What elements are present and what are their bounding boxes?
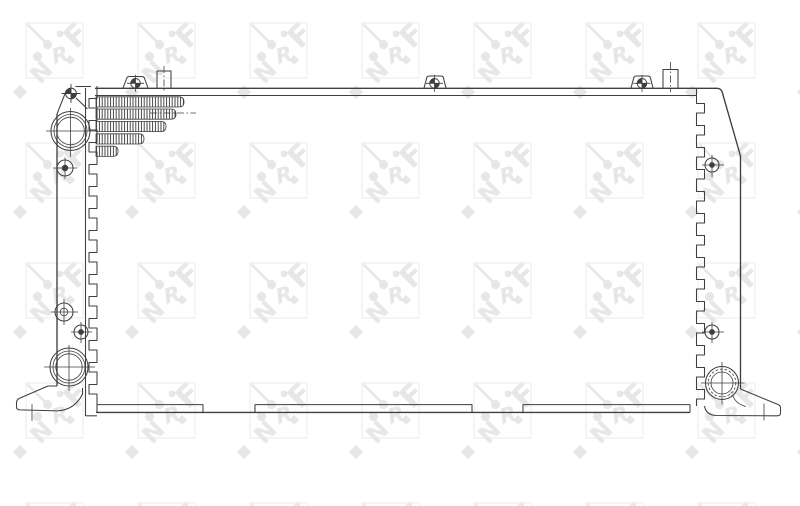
radiator-line-drawing: N R F <box>0 0 800 506</box>
watermark-layer <box>0 0 800 506</box>
radiator-drawing-canvas: N R F <box>0 0 800 506</box>
